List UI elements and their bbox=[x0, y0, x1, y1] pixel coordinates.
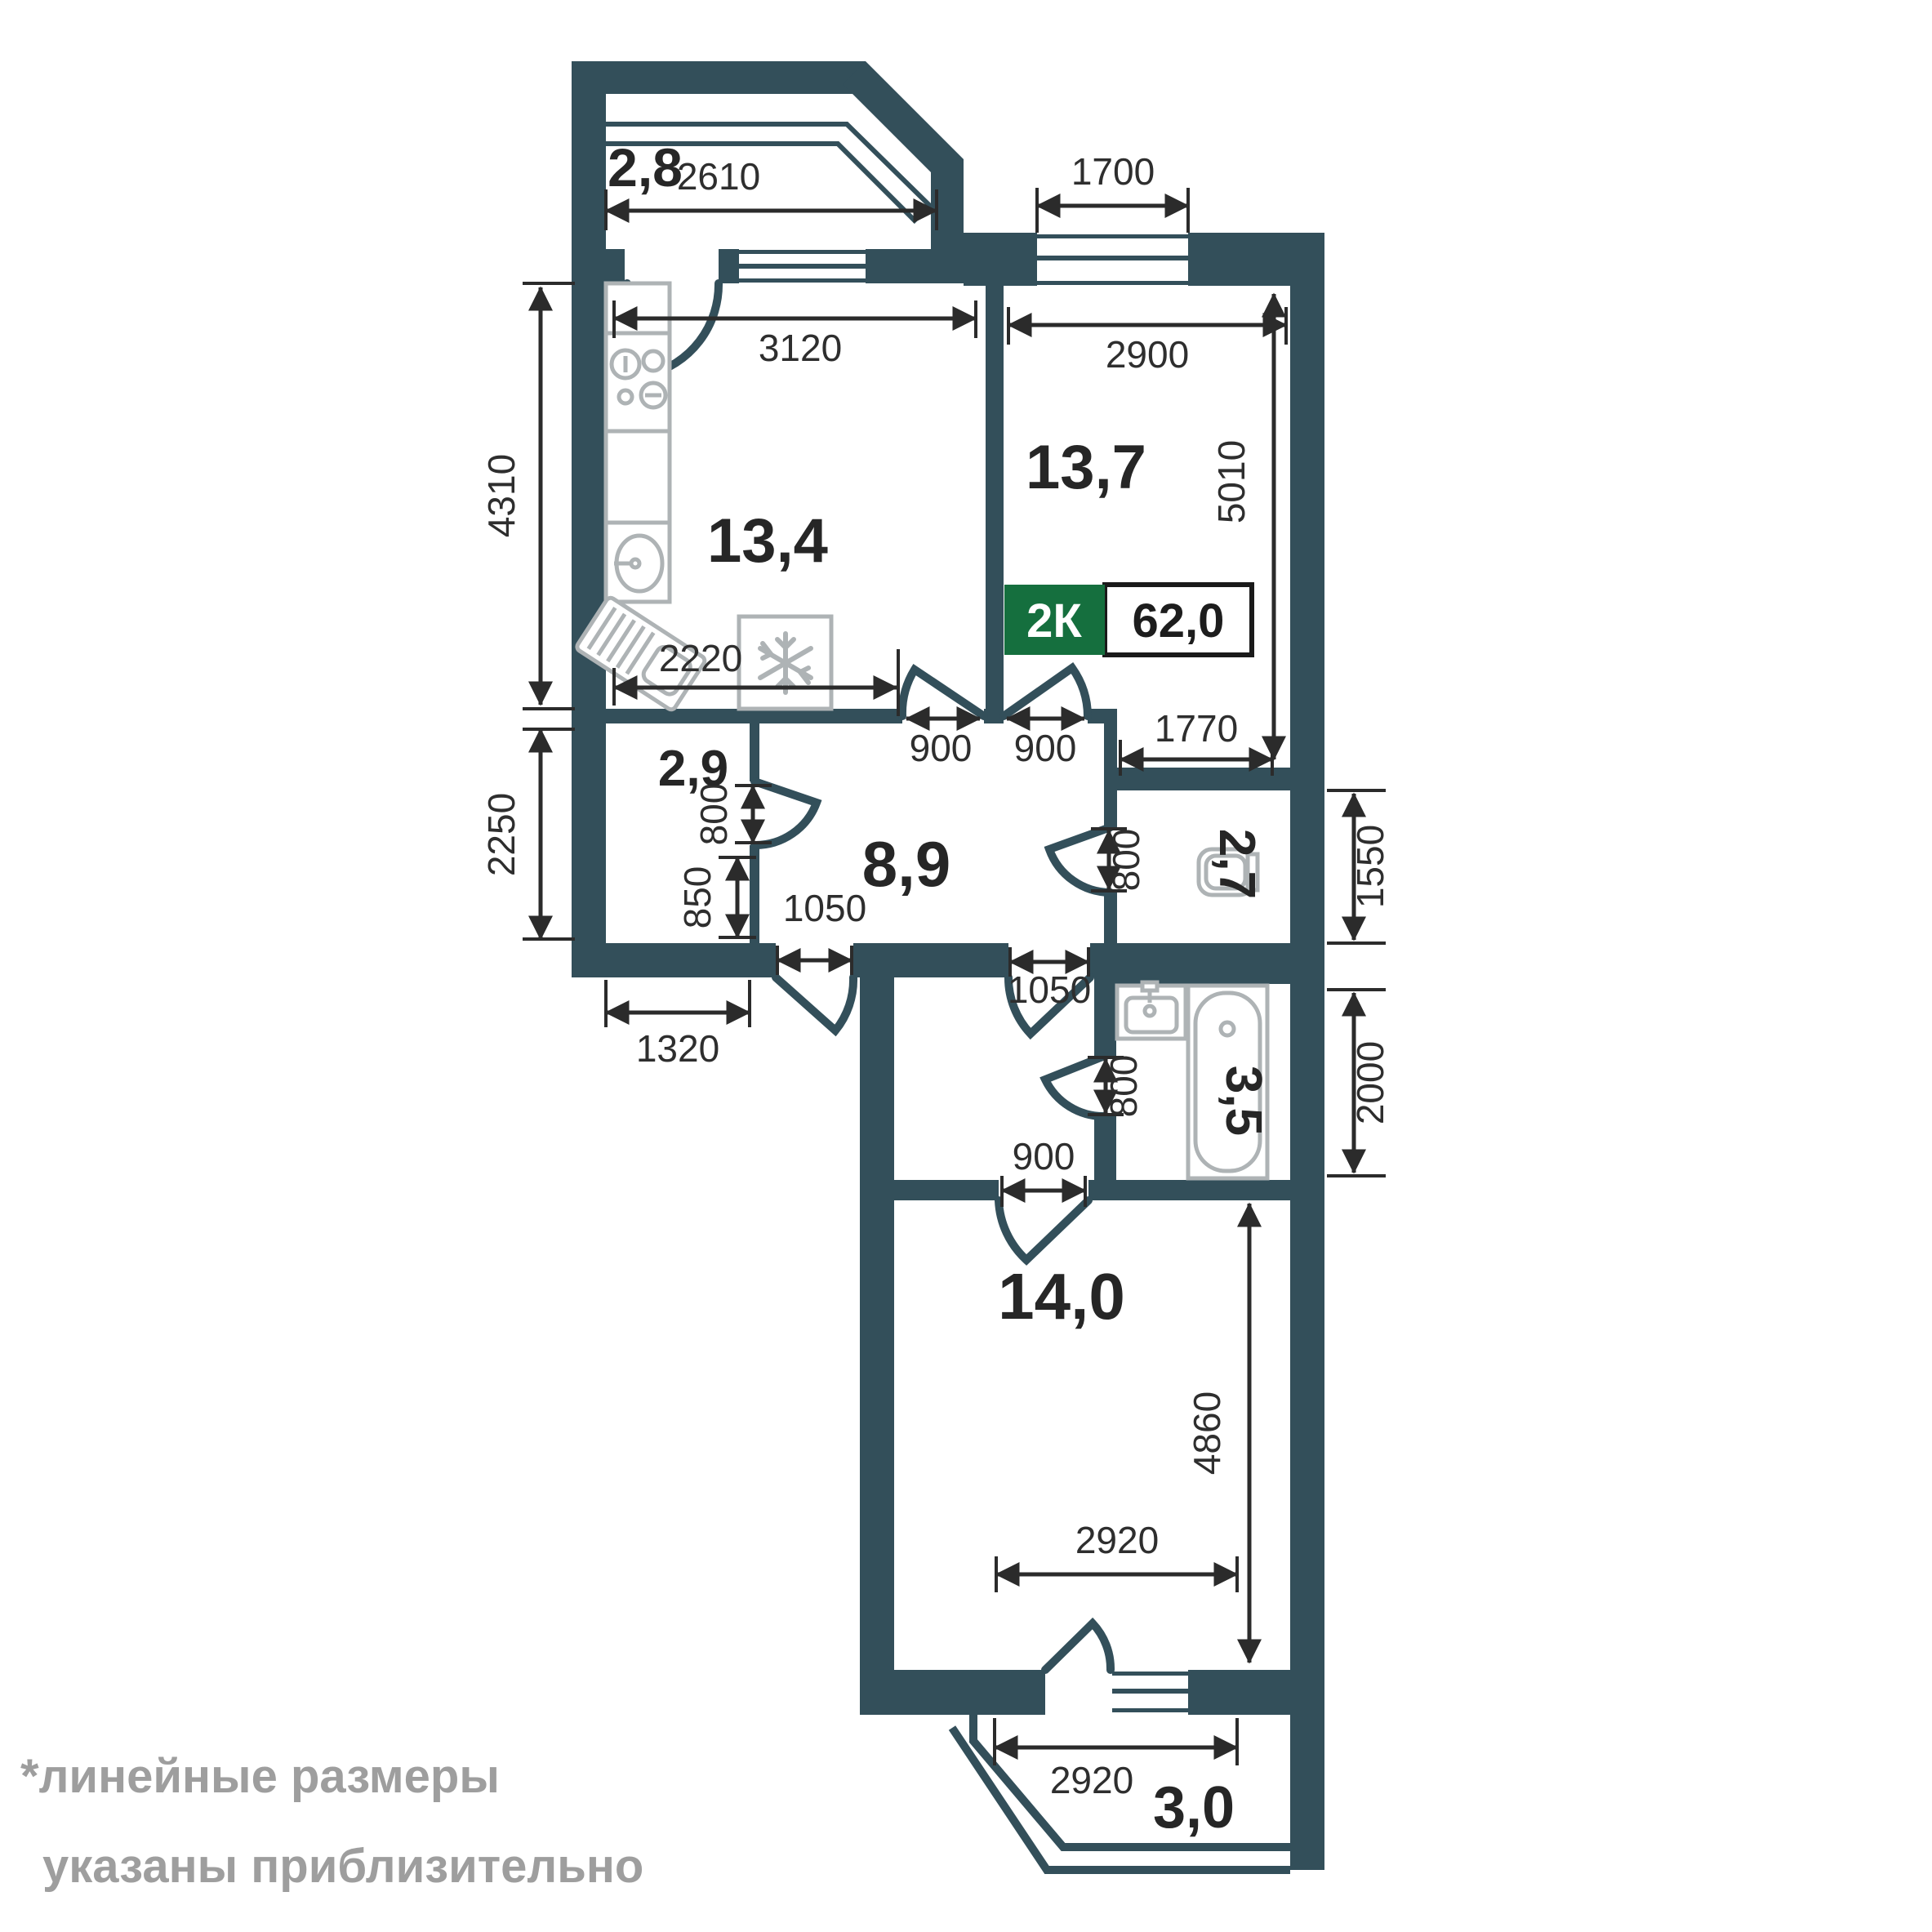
dim-label-1770: 1770 bbox=[1155, 707, 1238, 750]
dim-label-850: 850 bbox=[676, 866, 719, 929]
living-window bbox=[1037, 233, 1188, 286]
wall-segment bbox=[894, 943, 1008, 977]
room-kitchen-area: 13,4 bbox=[707, 506, 828, 576]
footnote: *линейные размеры указаны приблизительно bbox=[20, 1750, 643, 1893]
bottom-balcony-door-arc bbox=[1045, 1623, 1111, 1670]
dim-label-900b: 900 bbox=[1014, 727, 1077, 769]
dim-label-1050b: 1050 bbox=[1008, 968, 1091, 1011]
room-living-area: 13,7 bbox=[1026, 433, 1146, 502]
dim-label-3120: 3120 bbox=[759, 327, 842, 369]
dim-label-1550: 1550 bbox=[1349, 825, 1391, 908]
wardrobe-door-arc bbox=[755, 781, 817, 845]
dim-label-900c: 900 bbox=[1013, 1135, 1075, 1177]
entrance-door-arc bbox=[776, 977, 853, 1031]
wall-segment bbox=[750, 723, 759, 781]
dim-label-2000: 2000 bbox=[1349, 1041, 1391, 1124]
walls bbox=[572, 61, 1324, 1870]
wall-segment bbox=[1094, 943, 1290, 984]
dim-label-800b: 800 bbox=[1105, 829, 1147, 892]
wall-segment bbox=[606, 709, 902, 723]
wall-segment bbox=[572, 943, 776, 977]
room-hallway-area: 8,9 bbox=[862, 828, 950, 900]
dim-label-2250: 2250 bbox=[480, 793, 523, 876]
dim-label-2920b: 2920 bbox=[1050, 1759, 1133, 1801]
room-bedroom-area: 14,0 bbox=[998, 1260, 1125, 1333]
kitchen-door-arc bbox=[902, 670, 984, 716]
wc-door-arc bbox=[1049, 827, 1111, 893]
dim-label-2610: 2610 bbox=[677, 155, 760, 198]
wall-segment bbox=[894, 1180, 999, 1200]
room-wc-area: 2,7 bbox=[1209, 829, 1265, 899]
dim-label-4860: 4860 bbox=[1186, 1391, 1228, 1475]
floor-plan-svg: 2610 1700 3120 2900 2220 900 900 1770 43… bbox=[0, 0, 1932, 1932]
dim-label-1700: 1700 bbox=[1071, 150, 1155, 193]
footnote-line1: *линейные размеры bbox=[20, 1750, 500, 1803]
kitchen-window bbox=[739, 249, 866, 283]
washbasin-icon bbox=[1117, 982, 1186, 1039]
apartment-badge: 2К 62,0 bbox=[1004, 585, 1252, 655]
bedroom-window bbox=[1112, 1670, 1188, 1715]
wall-segment bbox=[1188, 1670, 1290, 1715]
wall-segment bbox=[750, 845, 759, 943]
wall-segment bbox=[860, 1670, 1045, 1715]
room-balcony-top-area: 2,8 bbox=[608, 137, 683, 198]
wall-segment bbox=[719, 249, 739, 283]
wall-segment bbox=[1094, 1116, 1116, 1186]
wall-segment bbox=[1290, 233, 1324, 1870]
floor-plan-page: 2610 1700 3120 2900 2220 900 900 1770 43… bbox=[0, 0, 1932, 1932]
badge-area-label: 62,0 bbox=[1133, 594, 1225, 648]
living-door-arc bbox=[1004, 668, 1088, 716]
dim-label-900a: 900 bbox=[910, 727, 973, 769]
wall-segment bbox=[1117, 768, 1290, 790]
bathroom-door-arc bbox=[1045, 1056, 1105, 1116]
bedroom-door-arc bbox=[999, 1200, 1088, 1260]
dim-label-2920a: 2920 bbox=[1075, 1519, 1159, 1561]
wall-segment bbox=[1088, 1180, 1290, 1200]
dim-label-800c: 800 bbox=[1102, 1055, 1145, 1118]
wall-segment bbox=[860, 943, 894, 1715]
wall-segment bbox=[1094, 977, 1116, 1056]
footnote-line2: указаны приблизительно bbox=[42, 1840, 643, 1893]
dim-label-2900: 2900 bbox=[1106, 333, 1189, 376]
wall-segment bbox=[572, 61, 866, 94]
fridge-snowflake-icon bbox=[739, 617, 831, 709]
room-bathroom-area: 3,5 bbox=[1215, 1066, 1271, 1136]
wall-segment bbox=[986, 283, 1004, 723]
dim-label-2220: 2220 bbox=[659, 637, 742, 679]
room-balcony-bottom-area: 3,0 bbox=[1153, 1775, 1235, 1841]
wall-segment bbox=[1104, 893, 1117, 943]
dim-label-4310: 4310 bbox=[480, 454, 523, 537]
dim-label-1050a: 1050 bbox=[783, 887, 866, 929]
badge-type-label: 2К bbox=[1026, 594, 1082, 648]
room-wardrobe-area: 2,9 bbox=[658, 741, 728, 797]
dim-label-5010: 5010 bbox=[1210, 440, 1253, 523]
dim-label-1320: 1320 bbox=[636, 1027, 719, 1070]
wall-segment bbox=[1104, 709, 1117, 827]
